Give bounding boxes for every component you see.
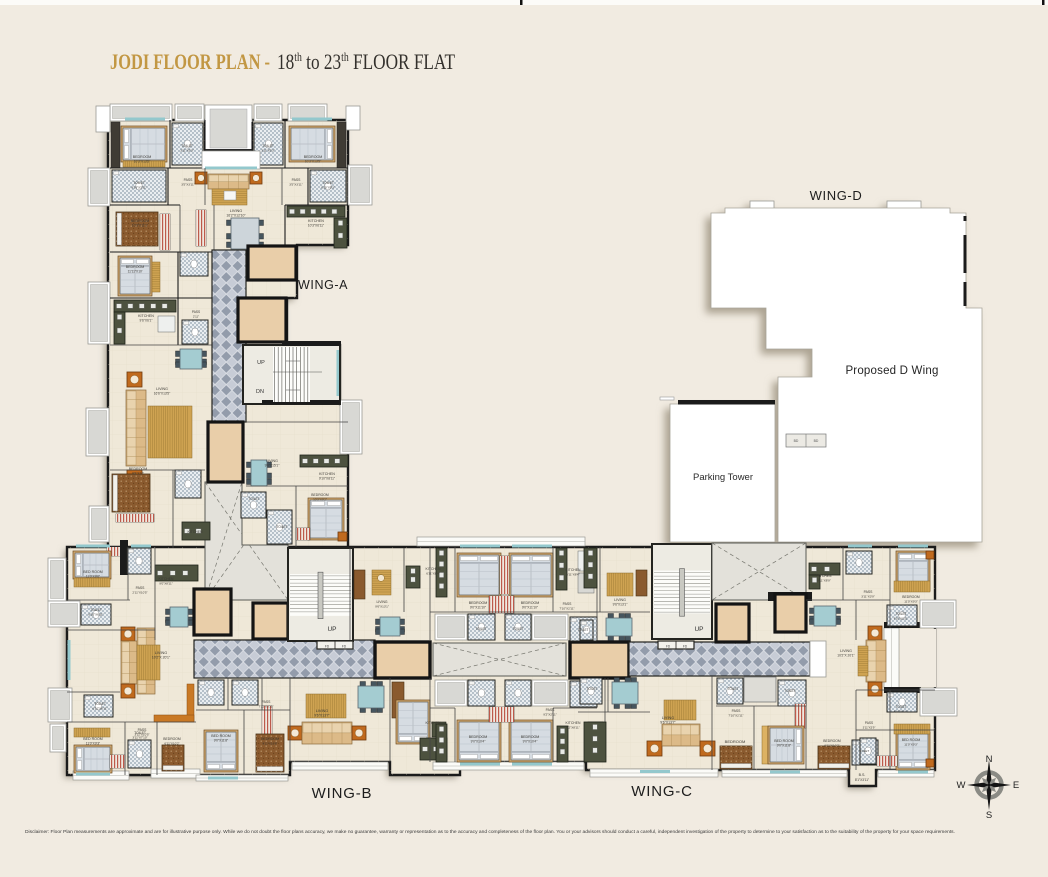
svg-text:FD: FD [683,645,688,649]
svg-text:TOILET: TOILET [322,181,334,185]
svg-text:PASS: PASS [184,178,194,182]
svg-text:11'0"X9'3": 11'0"X9'3" [904,743,918,747]
svg-text:9'2"X10': 9'2"X10' [132,472,144,476]
svg-text:Proposed D Wing: Proposed D Wing [845,365,938,377]
svg-text:10'2"X 20'1": 10'2"X 20'1" [837,654,855,658]
svg-text:Parking Tower: Parking Tower [693,472,753,483]
svg-text:LIVING: LIVING [614,598,626,602]
svg-text:9'0"X8'11": 9'0"X8'11" [159,582,173,586]
svg-text:LIVING: LIVING [376,600,387,604]
svg-text:3'11"X5'3": 3'11"X5'3" [180,149,194,153]
svg-text:TOILET: TOILET [895,612,906,616]
svg-text:6'11"X10'2": 6'11"X10'2" [164,742,179,746]
svg-text:FD: FD [342,645,347,649]
svg-text:BD: BD [814,439,819,443]
svg-text:7'11"X3'11": 7'11"X3'11" [258,705,273,709]
svg-text:10'3"X13'5": 10'3"X13'5" [134,160,151,164]
svg-text:6'10"X6'11": 6'10"X6'11" [894,710,908,714]
svg-text:3'11"X10'5": 3'11"X10'5" [134,733,149,737]
svg-text:PASS: PASS [864,590,874,594]
svg-text:PASS: PASS [262,700,272,704]
svg-text:3'5"X3'11": 3'5"X3'11" [289,183,303,187]
svg-text:3'5"X3'11": 3'5"X3'11" [181,183,195,187]
svg-text:6'10"X5'3": 6'10"X5'3" [321,186,335,190]
svg-text:9'0"X11'10": 9'0"X11'10" [522,606,539,610]
svg-text:BED ROOM: BED ROOM [902,738,921,742]
svg-text:9'0"X11'8": 9'0"X11'8" [214,739,229,743]
svg-text:WING-C: WING-C [631,783,692,800]
svg-text:PASS: PASS [136,586,146,590]
svg-text:6'10"X6'11": 6'10"X6'11" [88,613,103,617]
svg-text:9'6"X13'7": 9'6"X13'7" [314,714,330,718]
svg-text:BED ROOM: BED ROOM [83,570,103,574]
svg-text:KITCHEN: KITCHEN [566,568,581,572]
svg-text:TOILET: TOILET [90,608,102,612]
svg-text:BEDROOM: BEDROOM [725,739,746,744]
svg-text:LIVING: LIVING [316,709,328,713]
svg-text:18th to 23th FLOOR FLAT: 18th to 23th FLOOR FLAT [277,49,455,74]
svg-text:BEDROOM: BEDROOM [131,219,150,223]
svg-text:BED ROOM: BED ROOM [211,734,231,738]
svg-text:PASS: PASS [138,728,148,732]
svg-text:E: E [1013,780,1019,791]
svg-text:BED ROOM: BED ROOM [774,739,794,743]
svg-text:PASS: PASS [563,602,573,606]
svg-text:9'6"X6'1": 9'6"X6'1" [140,319,154,323]
svg-text:11'0"X9'6": 11'0"X9'6" [86,575,101,579]
svg-text:3'11"X3'9": 3'11"X3'9" [863,726,876,730]
svg-text:WING-A: WING-A [298,278,348,292]
svg-text:3'11"X5'3": 3'11"X5'3" [261,149,275,153]
svg-text:9'6"X13'1": 9'6"X13'1" [375,605,389,609]
svg-text:LIVING: LIVING [662,716,674,720]
svg-text:BEDROOM: BEDROOM [133,155,152,159]
svg-text:LIVING: LIVING [230,209,242,213]
svg-text:7'10"X2'11": 7'10"X2'11" [728,714,743,718]
svg-text:6'10"X6'11": 6'10"X6'11" [894,617,908,621]
svg-text:WING-D: WING-D [810,188,863,203]
svg-text:10'3"X13'5": 10'3"X13'5" [305,160,322,164]
svg-text:11'0"X9'3": 11'0"X9'3" [904,600,918,604]
svg-text:BEDROOM: BEDROOM [902,595,920,599]
svg-text:8'11"X8'9": 8'11"X8'9" [817,579,831,583]
svg-text:10'2"X 20'1": 10'2"X 20'1" [152,656,171,660]
svg-text:BEDROOM: BEDROOM [469,735,488,739]
svg-text:JODI FLOOR PLAN -: JODI FLOOR PLAN - [110,49,270,74]
svg-text:KITCHEN: KITCHEN [308,219,324,223]
svg-text:6'11"X8'4": 6'11"X8'4" [566,573,580,577]
svg-text:3'11"X3'9": 3'11"X3'9" [861,595,875,599]
svg-text:BEDROOM: BEDROOM [304,155,323,159]
svg-text:10'3"X9'2": 10'3"X9'2" [313,498,327,502]
svg-text:7'10"X2'11": 7'10"X2'11" [559,607,574,611]
svg-text:16'2"X12'10": 16'2"X12'10" [226,214,246,218]
svg-text:UP: UP [327,626,336,633]
svg-text:FD: FD [325,645,330,649]
svg-text:9'6"X15'1": 9'6"X15'1" [265,464,281,468]
svg-text:BEDROOM: BEDROOM [311,493,329,497]
svg-text:TOILET: TOILET [248,497,259,501]
svg-text:KITCHEN: KITCHEN [426,567,441,571]
svg-text:KITCHEN: KITCHEN [566,721,581,725]
svg-text:TOILET: TOILET [727,687,738,691]
svg-text:TOILET: TOILET [859,749,870,753]
svg-text:2'11": 2'11" [193,315,199,319]
svg-text:9'11"X10'8": 9'11"X10'8" [262,742,277,746]
svg-text:9'2"X2'11": 9'2"X2'11" [543,713,557,717]
svg-text:Disclaimer: Floor Plan measure: Disclaimer: Floor Plan measurements are … [25,829,955,834]
svg-text:B.S.: B.S. [859,773,866,777]
svg-text:UP: UP [694,626,703,633]
svg-text:PASS: PASS [546,708,556,712]
svg-text:9'0"X10'4": 9'0"X10'4" [471,740,487,744]
svg-text:6'10"X6'11": 6'10"X6'11" [92,707,107,711]
svg-text:LIVING: LIVING [156,387,168,391]
svg-text:10'3"X11'1": 10'3"X11'1" [132,224,149,228]
svg-text:KITCHEN: KITCHEN [188,530,203,534]
svg-text:N: N [986,754,993,765]
svg-text:6'11"X8'4": 6'11"X8'4" [426,572,440,576]
svg-text:9'0"X11'10": 9'0"X11'10" [470,606,487,610]
svg-text:6'11"X10'2": 6'11"X10'2" [824,744,839,748]
svg-text:TOILET: TOILET [94,702,106,706]
svg-text:S: S [986,810,992,821]
svg-text:UP: UP [257,360,265,366]
svg-text:BEDROOM: BEDROOM [261,737,279,741]
svg-text:8'1"X3'11": 8'1"X3'11" [855,778,869,782]
svg-text:PASS: PASS [865,721,873,725]
svg-text:TOILET: TOILET [262,144,274,148]
svg-text:11'0"X9'3": 11'0"X9'3" [86,742,101,746]
svg-text:DN: DN [256,389,264,395]
svg-text:BD: BD [794,439,799,443]
svg-text:BEDROOM: BEDROOM [163,737,181,741]
svg-text:TOILET: TOILET [512,627,523,631]
svg-text:LIVING: LIVING [155,651,167,655]
svg-text:BEDROOM: BEDROOM [521,601,540,605]
svg-text:BED ROOM: BED ROOM [83,737,103,741]
svg-text:TOILET: TOILET [586,687,597,691]
svg-text:16'6"X13'5": 16'6"X13'5" [154,392,171,396]
svg-text:PASS: PASS [192,310,200,314]
svg-text:KITCHEN: KITCHEN [817,574,832,578]
svg-text:11'11"X10': 11'11"X10' [128,270,143,274]
svg-text:PASS: PASS [292,178,302,182]
svg-text:10'3"X6'11": 10'3"X6'11" [308,224,325,228]
svg-text:BEDROOM: BEDROOM [129,467,148,471]
svg-text:BEDROOM: BEDROOM [521,735,540,739]
svg-text:9'10"X2'11": 9'10"X2'11" [131,186,146,190]
svg-text:2'11"X10'5": 2'11"X10'5" [132,591,147,595]
svg-text:BEDROOM: BEDROOM [126,265,145,269]
svg-text:KITCHEN: KITCHEN [426,721,441,725]
svg-text:LIVING: LIVING [840,649,852,653]
svg-text:BEDROOM: BEDROOM [823,739,841,743]
svg-text:9'0"X10'4": 9'0"X10'4" [523,740,539,744]
svg-text:PASS: PASS [732,709,742,713]
svg-text:KITCHEN: KITCHEN [319,472,335,476]
svg-text:KITCHEN: KITCHEN [138,314,154,318]
svg-text:TOILET: TOILET [181,144,193,148]
svg-text:LIVING: LIVING [266,459,278,463]
svg-text:TOILET: TOILET [577,628,588,632]
svg-text:BEDROOM: BEDROOM [469,601,488,605]
svg-text:9'6"X13'1": 9'6"X13'1" [613,603,629,607]
svg-text:WING-B: WING-B [312,785,373,802]
svg-text:TOILET: TOILET [475,627,486,631]
svg-text:TOILET: TOILET [133,181,145,185]
svg-text:6'2"X8'11": 6'2"X8'11" [566,726,580,730]
svg-text:TOILET: TOILET [276,525,287,529]
svg-text:9'10"X8'11": 9'10"X8'11" [319,477,336,481]
svg-text:TOILET: TOILET [784,689,795,693]
svg-text:9'0"X11'8": 9'0"X11'8" [777,744,792,748]
svg-text:W: W [957,780,966,791]
svg-text:TOILET: TOILET [895,705,906,709]
svg-text:9'6"X13'7": 9'6"X13'7" [660,721,676,725]
svg-text:KITCHEN: KITCHEN [159,577,174,581]
svg-text:FD: FD [666,645,671,649]
